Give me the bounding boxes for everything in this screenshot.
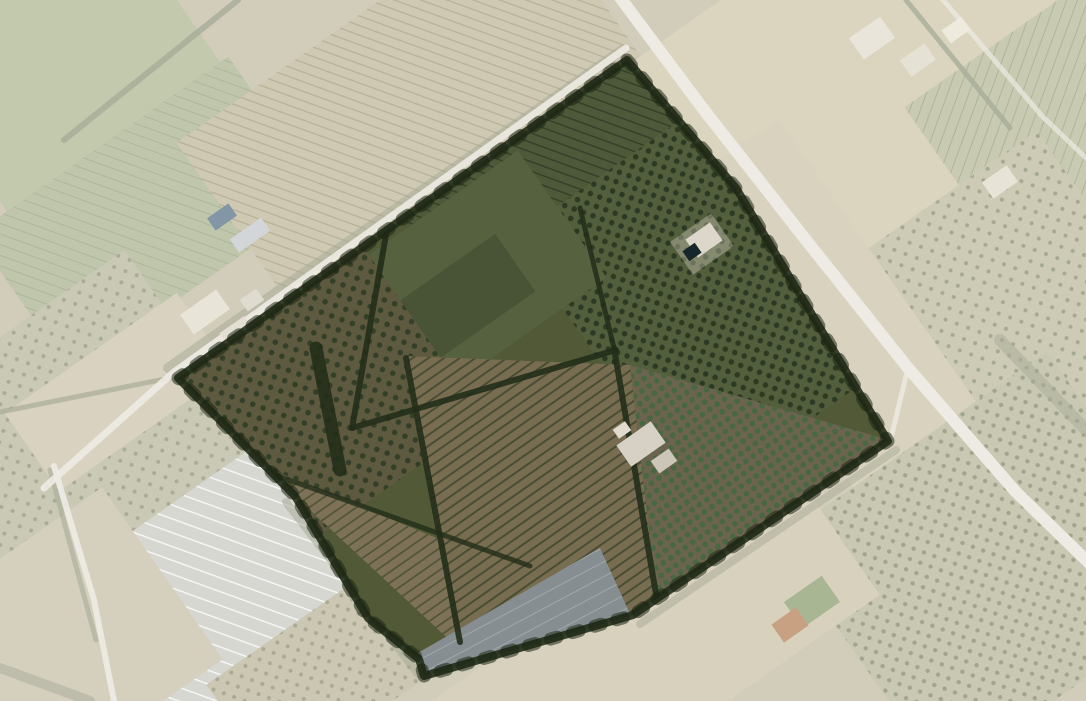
map-viewport[interactable]: [0, 0, 1086, 701]
satellite-map-canvas[interactable]: [0, 0, 1086, 701]
